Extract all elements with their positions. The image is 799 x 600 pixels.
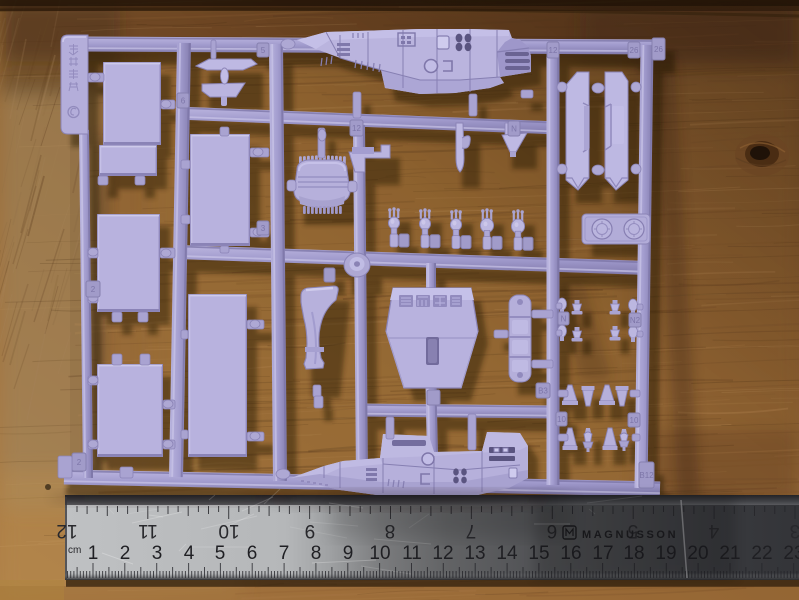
svg-text:3: 3 (261, 224, 266, 233)
svg-text:1: 1 (88, 543, 99, 564)
svg-text:B3: B3 (538, 387, 548, 396)
svg-text:26: 26 (630, 46, 639, 55)
svg-text:12: 12 (352, 124, 361, 133)
svg-text:B12: B12 (639, 471, 654, 480)
svg-text:N: N (511, 125, 517, 134)
svg-text:3: 3 (790, 520, 799, 541)
svg-text:3: 3 (152, 543, 163, 564)
svg-text:5: 5 (261, 46, 266, 55)
svg-text:11: 11 (402, 543, 422, 564)
svg-text:11: 11 (138, 520, 158, 541)
svg-text:4: 4 (184, 543, 195, 564)
svg-text:6: 6 (247, 543, 258, 564)
svg-text:13: 13 (464, 543, 485, 564)
svg-text:9: 9 (343, 543, 354, 564)
svg-text:22: 22 (751, 543, 772, 564)
svg-text:23: 23 (783, 543, 799, 564)
svg-text:8: 8 (311, 543, 322, 564)
svg-text:12: 12 (56, 520, 77, 541)
svg-text:12: 12 (432, 543, 453, 564)
svg-text:26: 26 (654, 45, 663, 54)
svg-text:6: 6 (181, 97, 186, 106)
svg-text:9: 9 (305, 520, 316, 541)
svg-text:12: 12 (549, 46, 558, 55)
svg-text:10: 10 (557, 415, 566, 424)
svg-text:10: 10 (630, 416, 639, 425)
svg-text:5: 5 (215, 543, 226, 564)
svg-text:2: 2 (91, 285, 96, 294)
svg-text:10: 10 (369, 543, 390, 564)
svg-text:2: 2 (120, 543, 131, 564)
svg-text:10: 10 (218, 520, 239, 541)
svg-text:14: 14 (496, 543, 518, 564)
svg-text:2: 2 (77, 458, 82, 467)
svg-text:7: 7 (279, 543, 290, 564)
svg-text:cm: cm (68, 545, 81, 556)
svg-text:N2: N2 (630, 316, 641, 325)
svg-text:N: N (561, 315, 567, 324)
